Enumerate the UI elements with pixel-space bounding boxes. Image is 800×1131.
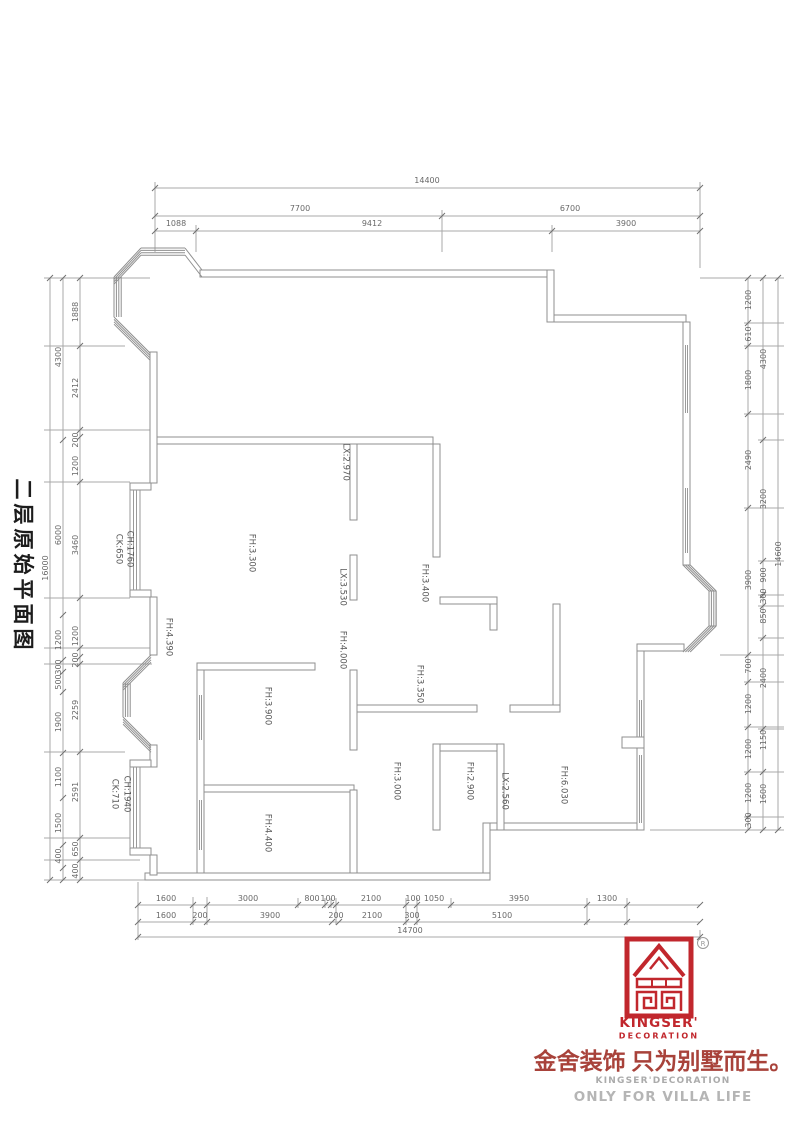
dimension-text: 14400 <box>414 177 439 185</box>
dimension-text: 850 <box>760 608 768 623</box>
dimension-text: 1600 <box>760 784 768 804</box>
dimension-text: 200 <box>72 432 80 447</box>
dimension-text: 1200 <box>745 739 753 759</box>
dimension-text: 700 <box>745 658 753 673</box>
room-label: CK:710 <box>110 779 119 810</box>
room-label: FH:3.400 <box>420 564 429 602</box>
dimension-text: 500 <box>55 674 63 689</box>
dimension-text: 3000 <box>238 895 258 903</box>
room-label: FH:3.000 <box>392 762 401 800</box>
room-label: FH:2.900 <box>465 762 474 800</box>
drawing-title: 二层原始平面图 <box>9 479 39 654</box>
dimension-text: 14700 <box>397 927 422 935</box>
logo-brand-subtitle: DECORATION <box>619 1032 699 1041</box>
dimension-lines-layer <box>44 182 784 940</box>
dimension-text: 1100 <box>55 767 63 787</box>
dimension-text: 300 <box>55 659 63 674</box>
dimension-text: 100 <box>405 895 420 903</box>
room-label: CK:650 <box>114 534 123 565</box>
dimension-text: 1050 <box>424 895 444 903</box>
dimension-text: 300 <box>404 912 419 920</box>
dimension-text: 2490 <box>745 450 753 470</box>
dimension-text: 2100 <box>362 912 382 920</box>
dimension-text: 1200 <box>745 783 753 803</box>
dimension-text: 1150 <box>760 730 768 750</box>
dimension-text: 5100 <box>492 912 512 920</box>
svg-text:R: R <box>701 940 706 948</box>
dimension-text: 800 <box>304 895 319 903</box>
room-label: CH:1940 <box>122 776 131 813</box>
dimension-text: 400 <box>72 863 80 878</box>
dimension-text: 1200 <box>745 694 753 714</box>
room-label: LX:2.560 <box>500 772 509 810</box>
dimension-text: 2100 <box>361 895 381 903</box>
dimension-text: 300 <box>760 588 768 603</box>
dimension-text: 1800 <box>745 370 753 390</box>
dimension-text: 7700 <box>290 205 310 213</box>
dimension-text: 1300 <box>597 895 617 903</box>
dimension-text: 2259 <box>72 700 80 720</box>
room-label: FH:4.400 <box>263 814 272 852</box>
dimension-text: 1200 <box>55 630 63 650</box>
dimension-text: 610 <box>745 326 753 341</box>
room-label: FH:3.350 <box>415 665 424 703</box>
dimension-text: 100 <box>320 895 335 903</box>
dimension-text: 3460 <box>72 535 80 555</box>
dimension-text: 400 <box>55 848 63 863</box>
dimension-text: 2400 <box>760 668 768 688</box>
kingser-logo-mark: R <box>627 938 709 1017</box>
logo-brand-name: KINGSER' <box>619 1015 698 1031</box>
room-label: FH:4.000 <box>338 631 347 669</box>
dimension-text: 200 <box>192 912 207 920</box>
logo-slogan-english-tagline: ONLY FOR VILLA LIFE <box>574 1089 752 1105</box>
dimension-text: 1888 <box>72 302 80 322</box>
dimension-text: 200 <box>328 912 343 920</box>
dimension-text: 16000 <box>42 555 50 580</box>
room-label: FH:4.390 <box>164 618 173 656</box>
dimension-text: 3200 <box>760 489 768 509</box>
room-label: LX:2.970 <box>341 443 350 481</box>
dimension-text: 9412 <box>362 220 382 228</box>
dimension-text: 200 <box>72 652 80 667</box>
dimension-text: 14600 <box>775 541 783 566</box>
floor-plan-sheet: R 二层原始平面图 144007700670010889412390016003… <box>0 0 800 1131</box>
dimension-text: 3900 <box>616 220 636 228</box>
room-label: FH:3.900 <box>263 687 272 725</box>
dimension-text: 650 <box>72 841 80 856</box>
room-label: FH:3.300 <box>247 534 256 572</box>
room-label: CH:1760 <box>125 531 134 568</box>
dimension-text: 2412 <box>72 378 80 398</box>
dimension-text: 4300 <box>55 347 63 367</box>
windows-layer <box>130 345 688 850</box>
logo-slogan-chinese: 金舍装饰 只为别墅而生。 <box>534 1042 793 1076</box>
room-label: FH:6.030 <box>559 766 568 804</box>
dimension-text: 900 <box>760 567 768 582</box>
dimension-text: 1088 <box>166 220 186 228</box>
dimension-text: 3950 <box>509 895 529 903</box>
dimension-text: 1200 <box>745 290 753 310</box>
dimension-text: 3900 <box>745 570 753 590</box>
dimension-text: 300 <box>745 812 753 827</box>
dimension-text: 1600 <box>156 912 176 920</box>
dimension-text: 3900 <box>260 912 280 920</box>
dimension-ticks-layer <box>47 185 781 940</box>
dimension-text: 1200 <box>72 626 80 646</box>
dimension-text: 6700 <box>560 205 580 213</box>
dimension-text: 1600 <box>156 895 176 903</box>
dimension-text: 2591 <box>72 782 80 802</box>
dimension-text: 1200 <box>72 456 80 476</box>
dimension-text: 6000 <box>55 525 63 545</box>
dimension-text: 4300 <box>760 349 768 369</box>
room-label: LX:3.530 <box>338 568 347 606</box>
dimension-text: 1900 <box>55 712 63 732</box>
floor-plan-drawing: R <box>0 0 800 1131</box>
logo-slogan-english-brand: KINGSER'DECORATION <box>596 1076 731 1086</box>
dimension-text: 1500 <box>55 813 63 833</box>
